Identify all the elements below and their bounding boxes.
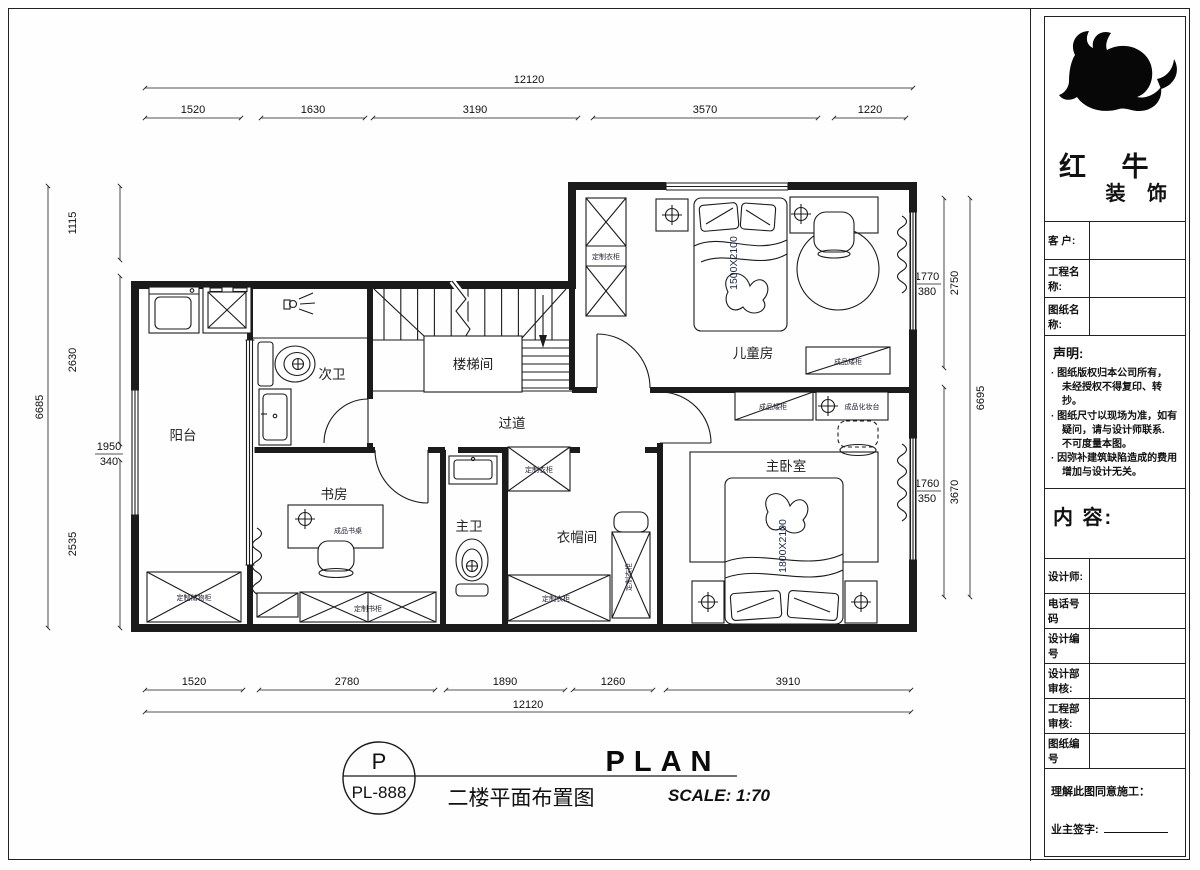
dim-left-1: 1115 xyxy=(67,212,79,235)
kids-bed: 1500X2100 xyxy=(694,198,787,331)
curtain-master xyxy=(898,444,907,521)
title-name-en: PLAN xyxy=(606,746,721,778)
svg-text:1950: 1950 xyxy=(97,441,121,453)
row-designer: 设计师: xyxy=(1045,559,1185,594)
title-circle-bottom: PL-888 xyxy=(352,783,407,802)
balcony-cabinet-label: 定制储物柜 xyxy=(177,593,212,602)
master-nightstand-right xyxy=(845,581,877,623)
dim-top-2: 1630 xyxy=(301,104,325,116)
window-balcony-divider xyxy=(246,340,255,565)
row-design-review-label: 设计部审核: xyxy=(1045,664,1090,698)
bookcase-label: 定制书柜 xyxy=(354,604,382,613)
vanity-2 xyxy=(259,389,291,445)
row-designer-value[interactable] xyxy=(1090,559,1185,593)
room-label-cloak: 衣帽间 xyxy=(557,530,598,545)
stairwell: 楼梯间 xyxy=(370,281,572,392)
statement-line: 不可度量本图。 xyxy=(1051,438,1181,452)
row-drawing-no-value[interactable] xyxy=(1090,734,1185,768)
dimensions-left: 6685 1115 2630 2535 1950 340 xyxy=(34,186,123,628)
dim-left-2: 2630 xyxy=(67,348,79,372)
statement-title: 声明: xyxy=(1053,343,1181,362)
row-drawing-no-label: 图纸编号 xyxy=(1045,734,1090,768)
svg-text:1760: 1760 xyxy=(915,478,939,490)
dim-bot-5: 3910 xyxy=(776,676,800,688)
row-phone-label: 电话号码 xyxy=(1045,594,1090,628)
sink-1 xyxy=(449,456,497,484)
room-label-kids: 儿童房 xyxy=(733,345,774,361)
master-low-cabinet: 成品矮柜 xyxy=(735,392,813,420)
bull-logo-icon xyxy=(1045,17,1185,141)
door-master xyxy=(660,392,711,443)
dim-right-1: 2750 xyxy=(949,271,961,295)
field-project: 工程名称: xyxy=(1045,260,1185,298)
field-project-value[interactable] xyxy=(1090,260,1185,297)
dimensions-top: 12120 1520 1630 3190 3570 1220 xyxy=(145,74,913,118)
dresser-label: 成品化妆台 xyxy=(845,402,880,411)
dim-bot-overall: 12120 xyxy=(513,699,544,711)
kids-desk-chair xyxy=(814,212,854,252)
row-design-no-value[interactable] xyxy=(1090,629,1185,663)
room-label-master: 主卧室 xyxy=(766,458,807,474)
dim-bot-1: 1520 xyxy=(182,676,206,688)
cloak-wardrobe-bottom-label: 定制衣柜 xyxy=(542,594,570,603)
dim-top-5: 1220 xyxy=(858,104,882,116)
row-eng-review: 工程部审核: xyxy=(1045,699,1185,734)
signature-owner: 业主签字: xyxy=(1051,821,1181,837)
row-eng-review-value[interactable] xyxy=(1090,699,1185,733)
dim-bot-3: 1890 xyxy=(493,676,517,688)
shower-head-icon xyxy=(284,293,315,314)
svg-text:340: 340 xyxy=(100,456,118,468)
dressing-stool xyxy=(838,421,878,447)
row-phone-value[interactable] xyxy=(1090,594,1185,628)
room-label-bath1: 主卫 xyxy=(456,519,483,534)
signature-box: 理解此图同意施工： 业主签字: xyxy=(1045,769,1185,856)
mop-sink xyxy=(203,287,251,333)
field-customer-label: 客 户: xyxy=(1045,222,1090,259)
dim-top-1: 1520 xyxy=(181,104,205,116)
kids-cabinet-label: 成品矮柜 xyxy=(834,357,862,366)
title-scale: SCALE: 1:70 xyxy=(668,786,771,805)
dim-right-overall: 6695 xyxy=(975,386,987,410)
floor-plan: 12120 1520 1630 3190 3570 1220 1520 2780… xyxy=(0,0,1030,870)
dimensions-right: 2750 3670 6695 1770 380 1760 350 xyxy=(913,198,987,597)
kids-bed-size: 1500X2100 xyxy=(728,236,740,290)
room-label-bath2: 次卫 xyxy=(319,367,346,382)
row-eng-review-label: 工程部审核: xyxy=(1045,699,1090,733)
company-logo: 红 牛 装 饰 xyxy=(1045,17,1185,222)
title-name-cn: 二楼平面布置图 xyxy=(448,787,595,810)
kids-desk xyxy=(790,197,879,310)
dimensions-bottom: 1520 2780 1890 1260 3910 12120 xyxy=(145,676,911,712)
dim-bot-4: 1260 xyxy=(601,676,625,688)
statement-line: · 图纸尺寸以现场为准，如有 xyxy=(1051,410,1181,424)
field-drawing-label: 图纸名称: xyxy=(1045,298,1090,335)
dim-right-fraction-2: 1760 350 xyxy=(913,478,941,505)
row-design-review-value[interactable] xyxy=(1090,664,1185,698)
master-cabinet-label: 成品矮柜 xyxy=(759,402,787,411)
master-bed: 1800X2100 xyxy=(725,478,843,624)
title-circle-top: P xyxy=(372,749,387,774)
cloak-wardrobe-top: 定制衣柜 xyxy=(508,447,570,491)
title-block: P PL-888 二楼平面布置图 PLAN SCALE: 1:70 xyxy=(343,742,771,814)
cloak-wardrobe-bottom: 定制衣柜 xyxy=(508,575,610,621)
content-label: 内 容: xyxy=(1045,489,1185,559)
signature-field[interactable] xyxy=(1104,822,1168,833)
cloakroom: 定制衣柜 定制衣柜 定制衣柜 衣帽间 xyxy=(508,447,650,621)
row-design-no-label: 设计编号 xyxy=(1045,629,1090,663)
signature-consent: 理解此图同意施工： xyxy=(1051,783,1181,799)
window-master-right xyxy=(910,438,917,560)
svg-text:380: 380 xyxy=(918,286,936,298)
statement-line: 未经授权不得复印、转抄。 xyxy=(1051,381,1181,409)
curtain-kids xyxy=(898,216,907,293)
kids-low-cabinet: 成品矮柜 xyxy=(806,347,890,374)
drawing-sheet: 12120 1520 1630 3190 3570 1220 1520 2780… xyxy=(0,0,1200,870)
door-study xyxy=(375,450,428,503)
bathroom-2: 次卫 xyxy=(252,293,368,445)
svg-text:350: 350 xyxy=(918,493,936,505)
row-design-review: 设计部审核: xyxy=(1045,664,1185,699)
door-bath2 xyxy=(324,399,368,443)
master-bed-size: 1800X2100 xyxy=(777,519,789,573)
window-kids-right xyxy=(910,212,917,330)
dim-top-3: 3190 xyxy=(463,104,487,116)
room-label-corridor: 过道 xyxy=(499,416,526,431)
study: 成品书桌 定制书柜 书房 xyxy=(257,487,436,622)
washing-machine xyxy=(149,287,199,333)
panel-divider xyxy=(1030,8,1031,861)
window-kids-top xyxy=(666,182,788,190)
statement-line: 增加与设计无关。 xyxy=(1051,466,1181,480)
room-label-stair: 楼梯间 xyxy=(453,357,494,372)
door-kids xyxy=(597,334,650,388)
balcony-cabinet: 定制储物柜 xyxy=(147,572,241,622)
study-desk: 成品书桌 xyxy=(288,505,383,578)
dim-left-3: 2535 xyxy=(67,532,79,556)
row-drawing-no: 图纸编号 xyxy=(1045,734,1185,769)
statement-box: 声明: · 图纸版权归本公司所有， 未经授权不得复印、转抄。 · 图纸尺寸以现场… xyxy=(1045,336,1185,489)
toilet-1 xyxy=(456,539,488,596)
dressing-table: 成品化妆台 xyxy=(816,392,888,456)
cloak-wardrobe-top-label: 定制衣柜 xyxy=(525,465,553,474)
row-design-no: 设计编号 xyxy=(1045,629,1185,664)
field-project-label: 工程名称: xyxy=(1045,260,1090,297)
dim-left-overall: 6685 xyxy=(34,395,46,419)
toilet-2 xyxy=(258,342,315,386)
cloak-wardrobe-right-label: 定制衣柜 xyxy=(624,563,633,591)
kids-wardrobe-label: 定制衣柜 xyxy=(592,252,620,261)
svg-text:1770: 1770 xyxy=(915,271,939,283)
dim-top-4: 3570 xyxy=(693,104,717,116)
statement-line: · 图纸版权归本公司所有， xyxy=(1051,367,1181,381)
study-corner-shelf xyxy=(257,593,298,617)
signature-owner-label: 业主签字: xyxy=(1051,824,1099,836)
statement-line: · 因弥补建筑缺陷造成的费用 xyxy=(1051,452,1181,466)
study-chair xyxy=(318,541,354,571)
master-nightstand-left xyxy=(692,581,724,623)
room-label-study: 书房 xyxy=(321,487,348,502)
logo-text-line2: 装 饰 xyxy=(1105,177,1175,206)
dim-right-2: 3670 xyxy=(949,480,961,504)
field-drawing-value[interactable] xyxy=(1090,298,1185,335)
field-customer-value[interactable] xyxy=(1090,222,1185,259)
field-drawing: 图纸名称: xyxy=(1045,298,1185,336)
dim-left-fraction: 1950 340 xyxy=(95,441,123,468)
desk-label: 成品书桌 xyxy=(334,526,362,535)
balcony: 定制储物柜 阳台 xyxy=(147,287,251,622)
row-phone: 电话号码 xyxy=(1045,594,1185,629)
cloak-wardrobe-right: 定制衣柜 xyxy=(612,512,650,618)
row-designer-label: 设计师: xyxy=(1045,559,1090,593)
title-panel: 红 牛 装 饰 客 户: 工程名称: 图纸名称: 声明: · 图纸版权归本公司所… xyxy=(1044,16,1186,857)
master-bedroom: 成品矮柜 成品化妆台 1800X2100 xyxy=(690,392,888,624)
dim-top-overall: 12120 xyxy=(514,74,545,86)
room-label-balcony: 阳台 xyxy=(170,428,197,443)
statement-line: 疑问，请与设计师联系. xyxy=(1051,424,1181,438)
kids-wardrobe: 定制衣柜 xyxy=(586,198,626,316)
bathroom-1: 主卫 xyxy=(449,456,497,596)
kids-nightstand xyxy=(656,199,688,231)
dim-bot-2: 2780 xyxy=(335,676,359,688)
study-bookcase: 定制书柜 xyxy=(300,592,436,622)
dim-right-fraction-1: 1770 380 xyxy=(913,271,941,298)
window-left-wall xyxy=(131,390,139,515)
field-customer: 客 户: xyxy=(1045,222,1185,260)
